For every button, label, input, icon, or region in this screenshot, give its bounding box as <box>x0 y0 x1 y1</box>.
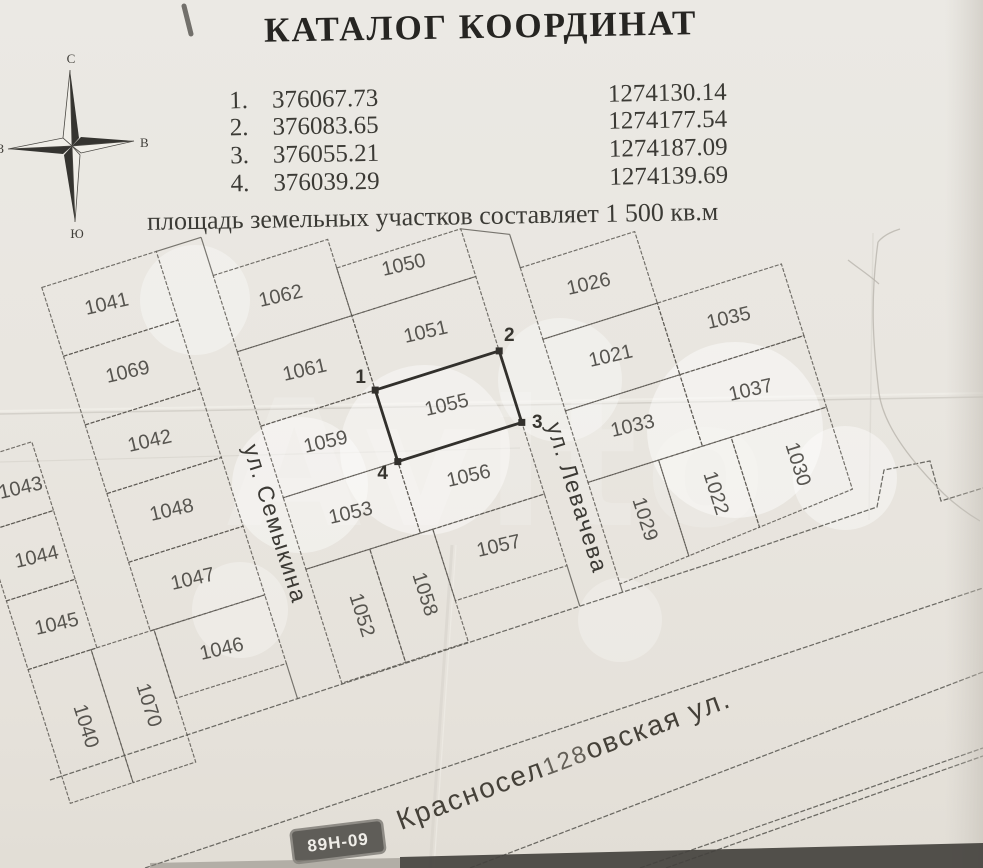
coord-x: 376055.21 <box>273 140 380 169</box>
coord-row-num: 2. <box>229 114 248 141</box>
coord-x: 376083.65 <box>272 112 379 141</box>
page-title: КАТАЛОГ КООРДИНАТ <box>264 3 698 50</box>
coord-row-num: 1. <box>229 87 248 114</box>
coordinate-catalog-scan: Avito КАТАЛОГ КООРДИНАТ 1. 376067.73 127… <box>0 0 983 868</box>
point-3-label: 3 <box>532 412 543 433</box>
compass-west-label: З <box>0 141 4 156</box>
coord-y: 1274187.09 <box>609 134 728 163</box>
compass-east-label: В <box>140 135 149 150</box>
point-2-label: 2 <box>504 325 515 346</box>
corner-point-1 <box>372 387 379 394</box>
compass-south-label: Ю <box>70 226 83 241</box>
corner-point-3 <box>518 419 525 426</box>
point-4-label: 4 <box>377 463 388 484</box>
coord-row-num: 3. <box>230 142 249 169</box>
coord-y: 1274177.54 <box>608 106 728 135</box>
corner-point-4 <box>394 458 401 465</box>
coord-y: 1274139.69 <box>609 162 728 191</box>
coord-x: 376039.29 <box>273 168 380 197</box>
point-1-label: 1 <box>355 367 366 388</box>
compass-north-label: С <box>67 51 76 66</box>
right-edge-shadow <box>945 0 983 868</box>
coord-x: 376067.73 <box>272 85 379 114</box>
coord-row-num: 4. <box>230 170 249 197</box>
coord-y: 1274130.14 <box>608 79 728 108</box>
corner-point-2 <box>496 347 503 354</box>
scanned-document: Avito КАТАЛОГ КООРДИНАТ 1. 376067.73 127… <box>0 0 983 868</box>
